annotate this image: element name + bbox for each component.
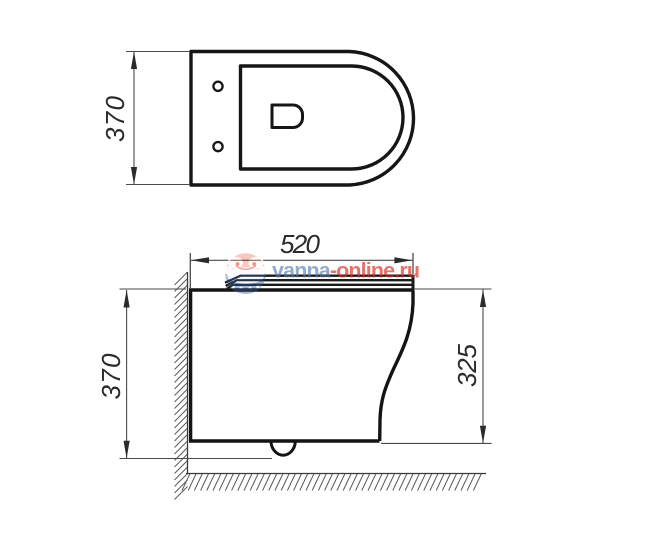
svg-text:370: 370: [100, 95, 130, 142]
svg-text:vanna-online.ru: vanna-online.ru: [272, 259, 420, 283]
svg-text:325: 325: [452, 343, 482, 387]
svg-text:520: 520: [280, 229, 321, 259]
svg-text:370: 370: [96, 353, 126, 400]
